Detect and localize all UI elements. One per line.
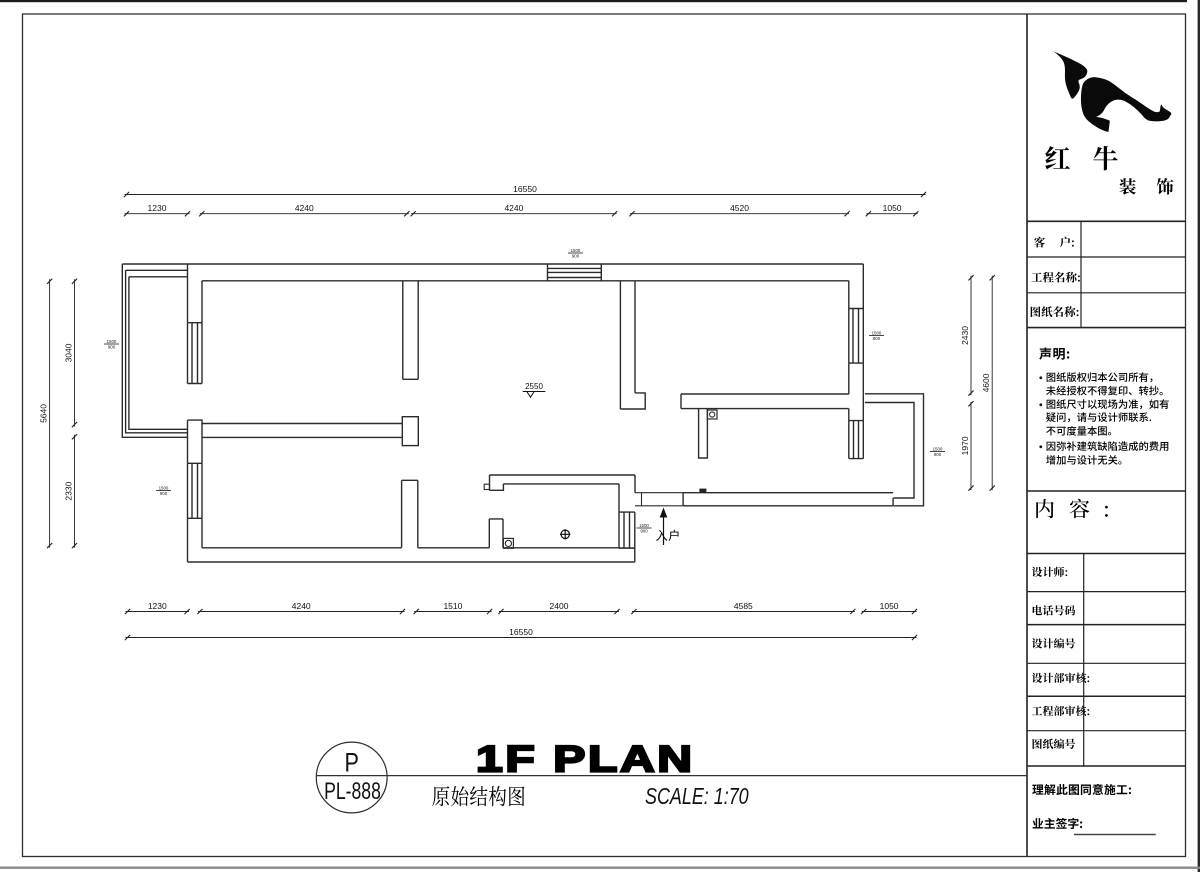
svg-text:4240: 4240 [504, 203, 523, 213]
svg-text:4585: 4585 [734, 601, 753, 611]
svg-text:1510: 1510 [443, 601, 462, 611]
svg-text:2430: 2430 [960, 326, 970, 345]
svg-text:16550: 16550 [513, 184, 537, 194]
svg-text:SCALE: 1:70: SCALE: 1:70 [645, 784, 749, 810]
svg-text:1050: 1050 [880, 601, 899, 611]
svg-text:1500: 1500 [933, 446, 943, 451]
svg-text:1500: 1500 [872, 330, 882, 335]
svg-text:1970: 1970 [960, 436, 970, 455]
svg-text:1230: 1230 [148, 601, 167, 611]
svg-text:4240: 4240 [295, 203, 314, 213]
svg-text:900: 900 [640, 528, 648, 533]
svg-text:1F PLAN: 1F PLAN [476, 739, 695, 780]
svg-text:3040: 3040 [64, 343, 74, 362]
svg-text:1500: 1500 [571, 248, 581, 253]
svg-text:900: 900 [160, 491, 168, 496]
svg-text:2550: 2550 [525, 382, 543, 391]
svg-text:2330: 2330 [64, 481, 74, 500]
svg-text:900: 900 [108, 344, 116, 349]
svg-text:2400: 2400 [550, 601, 569, 611]
svg-text:P: P [344, 748, 358, 778]
svg-text:1500: 1500 [639, 523, 649, 528]
svg-text:PL-888: PL-888 [324, 777, 381, 805]
svg-text:5640: 5640 [39, 404, 49, 423]
svg-text:900: 900 [572, 253, 580, 258]
svg-text:1500: 1500 [107, 339, 117, 344]
svg-text:4600: 4600 [981, 373, 991, 392]
svg-text:900: 900 [934, 452, 942, 457]
svg-text:900: 900 [873, 336, 881, 341]
svg-text:4520: 4520 [730, 203, 749, 213]
svg-text:1230: 1230 [148, 203, 167, 213]
svg-text:1500: 1500 [159, 485, 169, 490]
svg-text:16550: 16550 [509, 627, 533, 637]
svg-text:4240: 4240 [292, 601, 311, 611]
svg-text:1050: 1050 [883, 203, 902, 213]
